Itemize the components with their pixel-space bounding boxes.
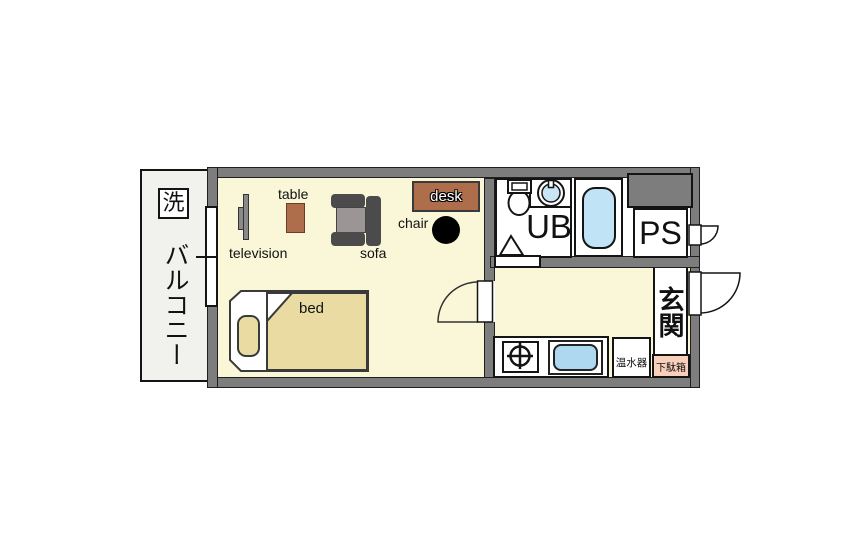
television-stand-icon [238, 207, 244, 230]
desk-icon: desk [412, 181, 480, 212]
sofa-armrest-bottom [331, 232, 365, 246]
table-icon [286, 203, 305, 233]
room-door-arc [438, 282, 478, 322]
television-label: television [229, 245, 287, 261]
room-door-leaf [478, 281, 493, 322]
sofa-seat [336, 207, 366, 233]
chair-icon [432, 216, 460, 244]
ps-door-arc [700, 226, 718, 244]
chair-label: chair [398, 215, 428, 231]
toilet-bowl-icon [509, 191, 530, 215]
ps-door-leaf [689, 225, 701, 245]
desk-label: desk [430, 188, 462, 205]
sofa-backrest [366, 196, 381, 246]
sofa-armrest-top [331, 194, 365, 208]
sofa-label: sofa [360, 245, 386, 261]
table-label: table [278, 186, 308, 202]
plan-symbols [0, 0, 847, 543]
bed-label: bed [299, 300, 324, 317]
entrance-door-leaf [689, 272, 701, 315]
bath-door-triangle-icon [500, 236, 523, 255]
toilet-tank-lid-icon [512, 183, 527, 190]
entrance-door-arc [700, 273, 740, 313]
floor-plan: 洗 バルコニー UB PS 玄関 下駄箱 温水器 [0, 0, 847, 543]
bed-pillow [238, 316, 259, 356]
washbasin-faucet-icon [549, 181, 554, 188]
